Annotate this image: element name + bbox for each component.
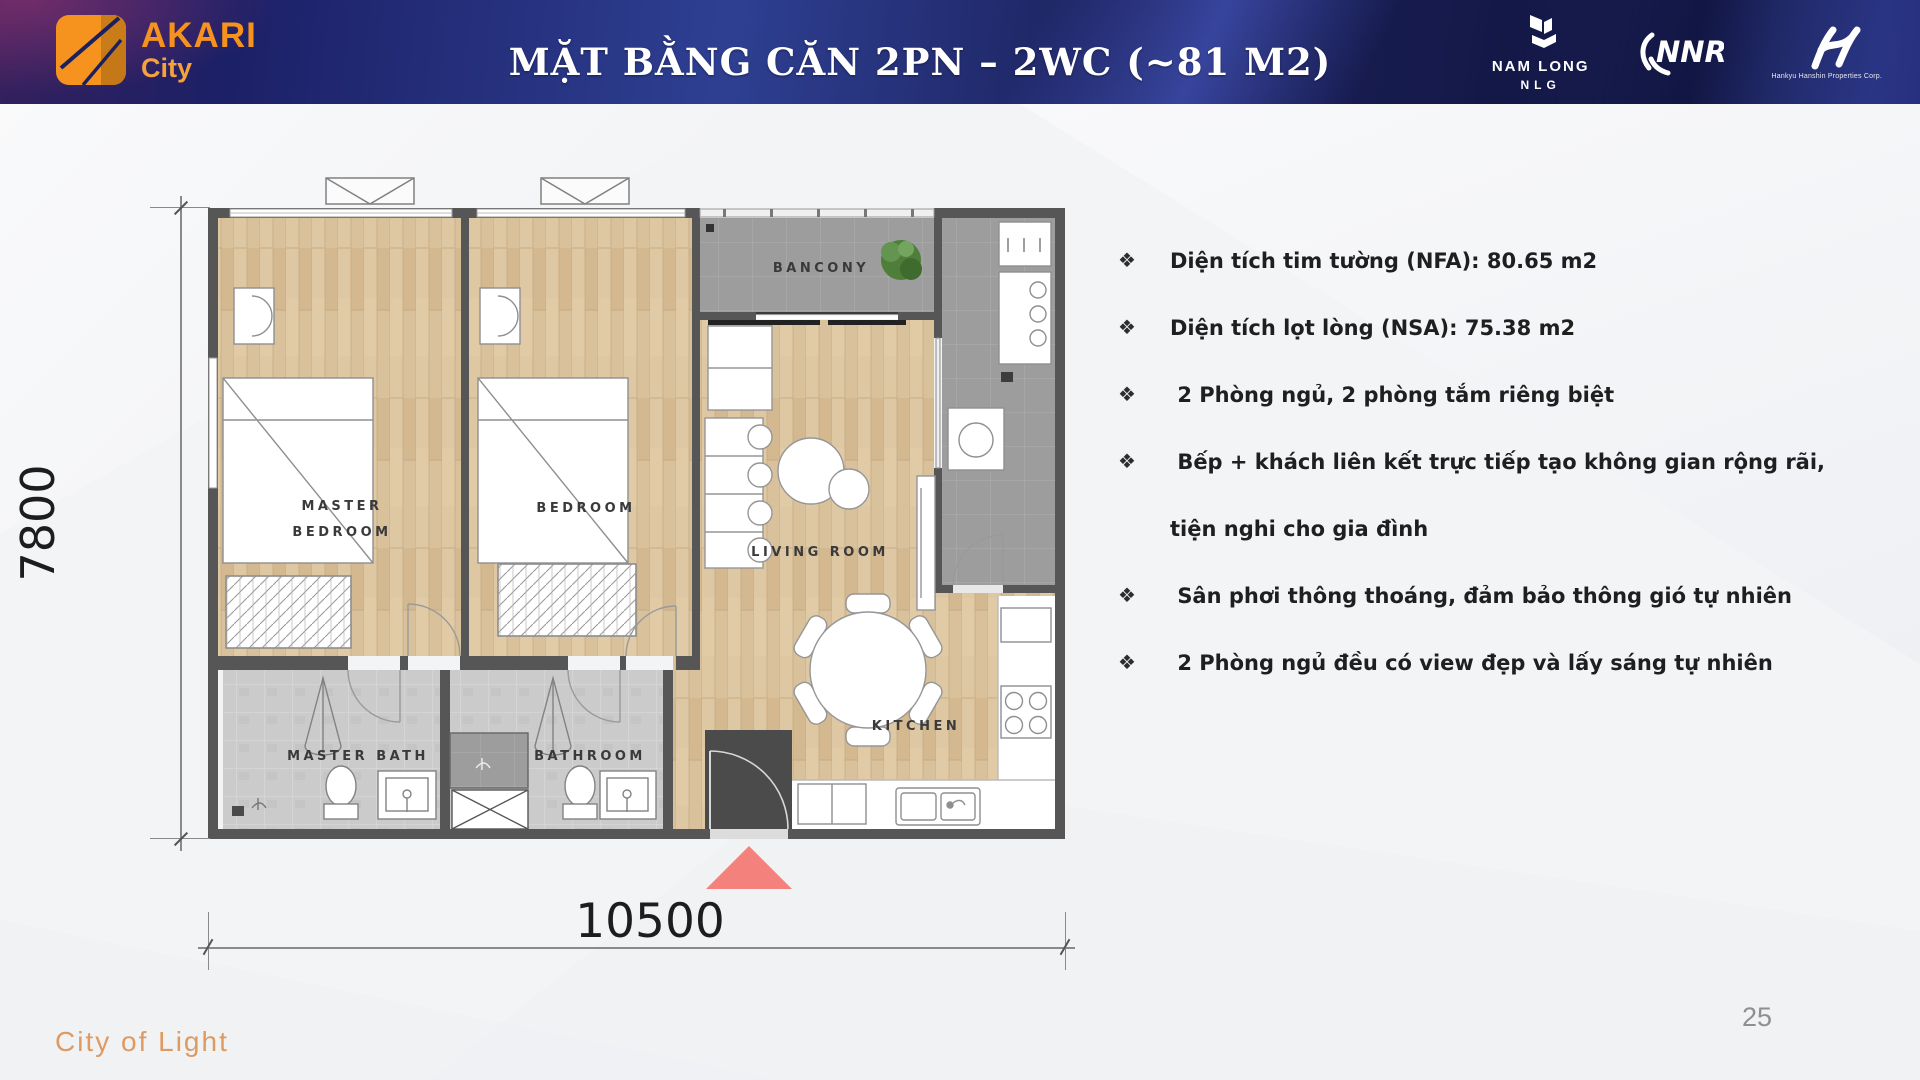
feature-text: Sân phơi thông thoáng, đảm bảo thông gió… [1170,563,1792,630]
room-label-master-bath: MASTER BATH [287,749,429,764]
hankyu-mark-icon [1781,24,1873,70]
floor-plan: BANCONY MASTER BEDROOM BEDROOM LIVING RO… [208,174,1065,839]
room-label-bedroom: BEDROOM [536,501,635,516]
entrance-arrow-icon [706,846,792,889]
nam-long-logo: NAM LONG NLG [1492,13,1590,92]
feature-text: Bếp + khách liên kết trực tiếp tạo không… [1170,429,1874,563]
room-label-master-bedroom: MASTER [301,499,382,514]
hankyu-caption: Hankyu Hanshin Properties Corp. [1772,73,1882,80]
dim-line-vertical [180,196,182,851]
diamond-bullet-icon: ❖ [1118,295,1170,362]
diamond-bullet-icon: ❖ [1118,630,1170,697]
feature-text: Diện tích lọt lòng (NSA): 75.38 m2 [1170,295,1575,362]
room-label-balcony: BANCONY [773,261,869,276]
room-label-bathroom: BATHROOM [534,749,646,764]
feature-item: ❖ 2 Phòng ngủ đều có view đẹp và lấy sán… [1118,630,1874,697]
feature-item: ❖ Diện tích tim tường (NFA): 80.65 m2 [1118,228,1874,295]
diamond-bullet-icon: ❖ [1118,362,1170,429]
header-bar: AKARI City MẶT BẰNG CĂN 2PN – 2WC (~81 M… [0,0,1920,104]
nam-long-mark-icon [1518,13,1564,55]
brand-name: AKARI [141,18,257,53]
page-title: MẶT BẰNG CĂN 2PN – 2WC (~81 M2) [380,40,1460,84]
toilet [565,766,595,806]
akari-logo: AKARI City [55,14,257,86]
dim-value-width: 10500 [420,894,880,949]
nnr-mark-icon: NNR [1638,25,1724,79]
nnr-logo: NNR [1638,25,1724,79]
feature-text: 2 Phòng ngủ, 2 phòng tắm riêng biệt [1170,362,1614,429]
corridor-floor [673,656,700,829]
room-label-master-bedroom: BEDROOM [292,525,391,540]
nnr-text: NNR [1656,35,1724,69]
nam-long-abbr: NLG [1521,78,1561,92]
tv-console [917,476,935,610]
washing-machine [948,408,1004,470]
akari-logo-mark [55,14,127,86]
side-window [209,358,217,488]
feature-item: ❖ Bếp + khách liên kết trực tiếp tạo khô… [1118,429,1874,563]
diamond-bullet-icon: ❖ [1118,563,1170,630]
diamond-bullet-icon: ❖ [1118,228,1170,295]
hankyu-hanshin-logo: Hankyu Hanshin Properties Corp. [1772,24,1882,80]
feature-item: ❖ 2 Phòng ngủ, 2 phòng tắm riêng biệt [1118,362,1874,429]
slide: AKARI City MẶT BẰNG CĂN 2PN – 2WC (~81 M… [0,0,1920,1080]
awning-window-icon [326,178,629,204]
page-number: 25 [1742,1002,1772,1033]
footer-tagline: City of Light [55,1026,229,1058]
room-label-kitchen: KITCHEN [872,719,960,734]
dim-value-height: 7800 [0,475,82,571]
feature-text: Diện tích tim tường (NFA): 80.65 m2 [1170,228,1597,295]
room-label-living-room: LIVING ROOM [751,545,889,560]
feature-item: ❖ Diện tích lọt lòng (NSA): 75.38 m2 [1118,295,1874,362]
brand-sub: City [141,55,257,82]
brand-text: AKARI City [141,18,257,82]
diamond-bullet-icon: ❖ [1118,429,1170,496]
partner-logos: NAM LONG NLG NNR Hankyu Han [1492,10,1882,94]
feature-item: ❖ Sân phơi thông thoáng, đảm bảo thông g… [1118,563,1874,630]
feature-text: 2 Phòng ngủ đều có view đẹp và lấy sáng … [1170,630,1773,697]
nam-long-name: NAM LONG [1492,58,1590,75]
toilet [326,766,356,806]
features-list: ❖ Diện tích tim tường (NFA): 80.65 m2 ❖ … [1118,228,1874,697]
entry-foyer-floor [705,730,792,829]
